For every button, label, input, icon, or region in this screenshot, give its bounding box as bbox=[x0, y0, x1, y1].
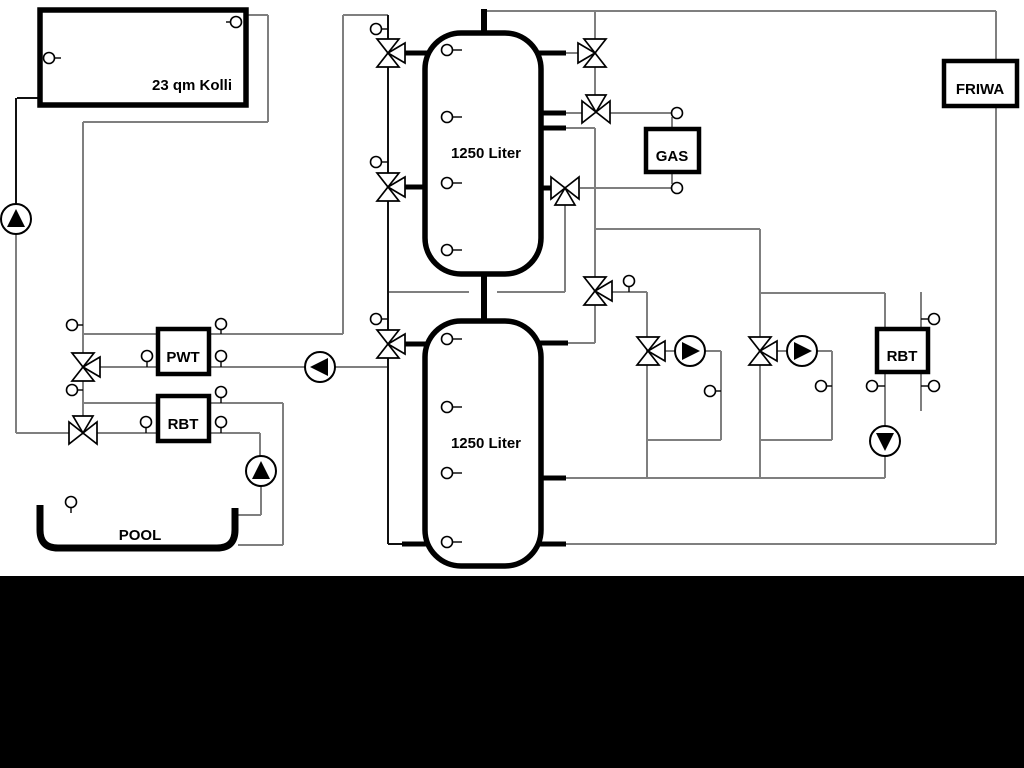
sensor-icon bbox=[672, 183, 683, 194]
three-way-valve-tank1-left-top bbox=[377, 39, 405, 67]
sensor-icon bbox=[231, 17, 242, 28]
sensor-icon bbox=[216, 351, 227, 362]
three-way-valve-gas-return bbox=[551, 177, 579, 205]
sensor-icon bbox=[216, 387, 227, 398]
rbt-right-label: RBT bbox=[887, 348, 918, 365]
sensor-icon bbox=[371, 24, 382, 35]
sensor-icon bbox=[142, 351, 153, 362]
three-way-valve-tank2-left bbox=[377, 330, 405, 358]
three-way-valve-pool-return bbox=[69, 416, 97, 444]
friwa-label: FRIWA bbox=[956, 81, 1004, 98]
three-way-valve-tank1-left-mid bbox=[377, 173, 405, 201]
pool-label: POOL bbox=[119, 527, 162, 544]
sensor-icon bbox=[442, 402, 453, 413]
three-way-valve-circuit2 bbox=[749, 337, 777, 365]
sensor-icon bbox=[442, 178, 453, 189]
sensor-icon bbox=[442, 537, 453, 548]
letterbox-band bbox=[0, 576, 1024, 768]
sensor-icon bbox=[816, 381, 827, 392]
pwt-label: PWT bbox=[166, 349, 199, 366]
three-way-valve-heating-main bbox=[584, 277, 612, 305]
gas-label: GAS bbox=[656, 148, 689, 165]
schematic-canvas: 23 qm Kolli 1250 Liter 1250 Liter PWT RB… bbox=[0, 0, 1024, 768]
pump-circuit2 bbox=[787, 336, 817, 366]
sensor-icon bbox=[929, 314, 940, 325]
sensor-icon bbox=[66, 497, 77, 508]
three-way-valve-pwt bbox=[72, 353, 100, 381]
tank1-label: 1250 Liter bbox=[451, 145, 521, 162]
sensor-icon bbox=[67, 320, 78, 331]
sensor-icon bbox=[216, 319, 227, 330]
pump-pool bbox=[246, 456, 276, 486]
sensor-icon bbox=[67, 385, 78, 396]
sensor-icon bbox=[442, 245, 453, 256]
sensor-icon bbox=[442, 112, 453, 123]
collector-label: 23 qm Kolli bbox=[152, 77, 232, 94]
pump-circuit1 bbox=[675, 336, 705, 366]
sensor-icon bbox=[216, 417, 227, 428]
sensor-icon bbox=[371, 314, 382, 325]
sensor-icon bbox=[929, 381, 940, 392]
sensor-icon bbox=[867, 381, 878, 392]
tank2-label: 1250 Liter bbox=[451, 435, 521, 452]
three-way-valve-tank1-right-top bbox=[578, 39, 606, 67]
sensor-icon bbox=[371, 157, 382, 168]
sensor-icon bbox=[141, 417, 152, 428]
hydraulic-schematic: 23 qm Kolli 1250 Liter 1250 Liter PWT RB… bbox=[0, 0, 1024, 768]
pump-pwt bbox=[305, 352, 335, 382]
three-way-valve-circuit1 bbox=[637, 337, 665, 365]
sensor-icon bbox=[442, 334, 453, 345]
sensor-icon bbox=[44, 53, 55, 64]
sensor-icon bbox=[672, 108, 683, 119]
pump-rbt-right bbox=[870, 426, 900, 456]
sensor-icon bbox=[442, 45, 453, 56]
sensor-icon bbox=[705, 386, 716, 397]
sensor-icon bbox=[442, 468, 453, 479]
rbt-left-label: RBT bbox=[168, 416, 199, 433]
pump-solar bbox=[1, 204, 31, 234]
sensor-icon bbox=[624, 276, 635, 287]
three-way-valve-gas-supply bbox=[582, 95, 610, 123]
